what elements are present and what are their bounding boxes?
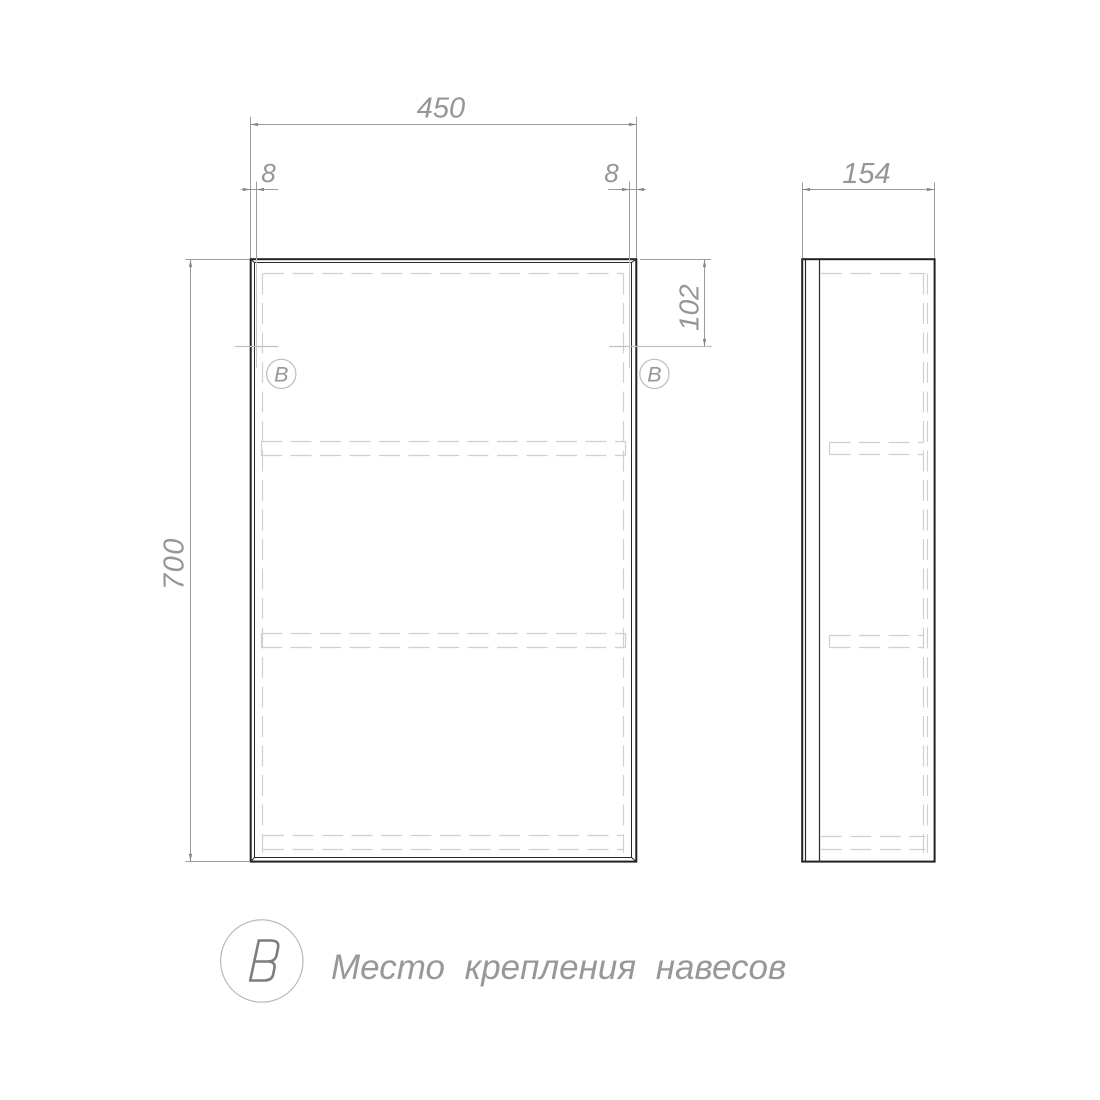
svg-text:В: В — [647, 363, 661, 387]
svg-text:8: 8 — [604, 158, 619, 188]
svg-text:700: 700 — [159, 537, 191, 590]
svg-text:450: 450 — [417, 93, 465, 125]
svg-text:8: 8 — [261, 158, 276, 188]
svg-text:В: В — [274, 363, 288, 387]
svg-text:Место крепления навесов: Место крепления навесов — [331, 948, 786, 987]
svg-text:102: 102 — [674, 284, 705, 331]
svg-text:154: 154 — [842, 158, 890, 190]
